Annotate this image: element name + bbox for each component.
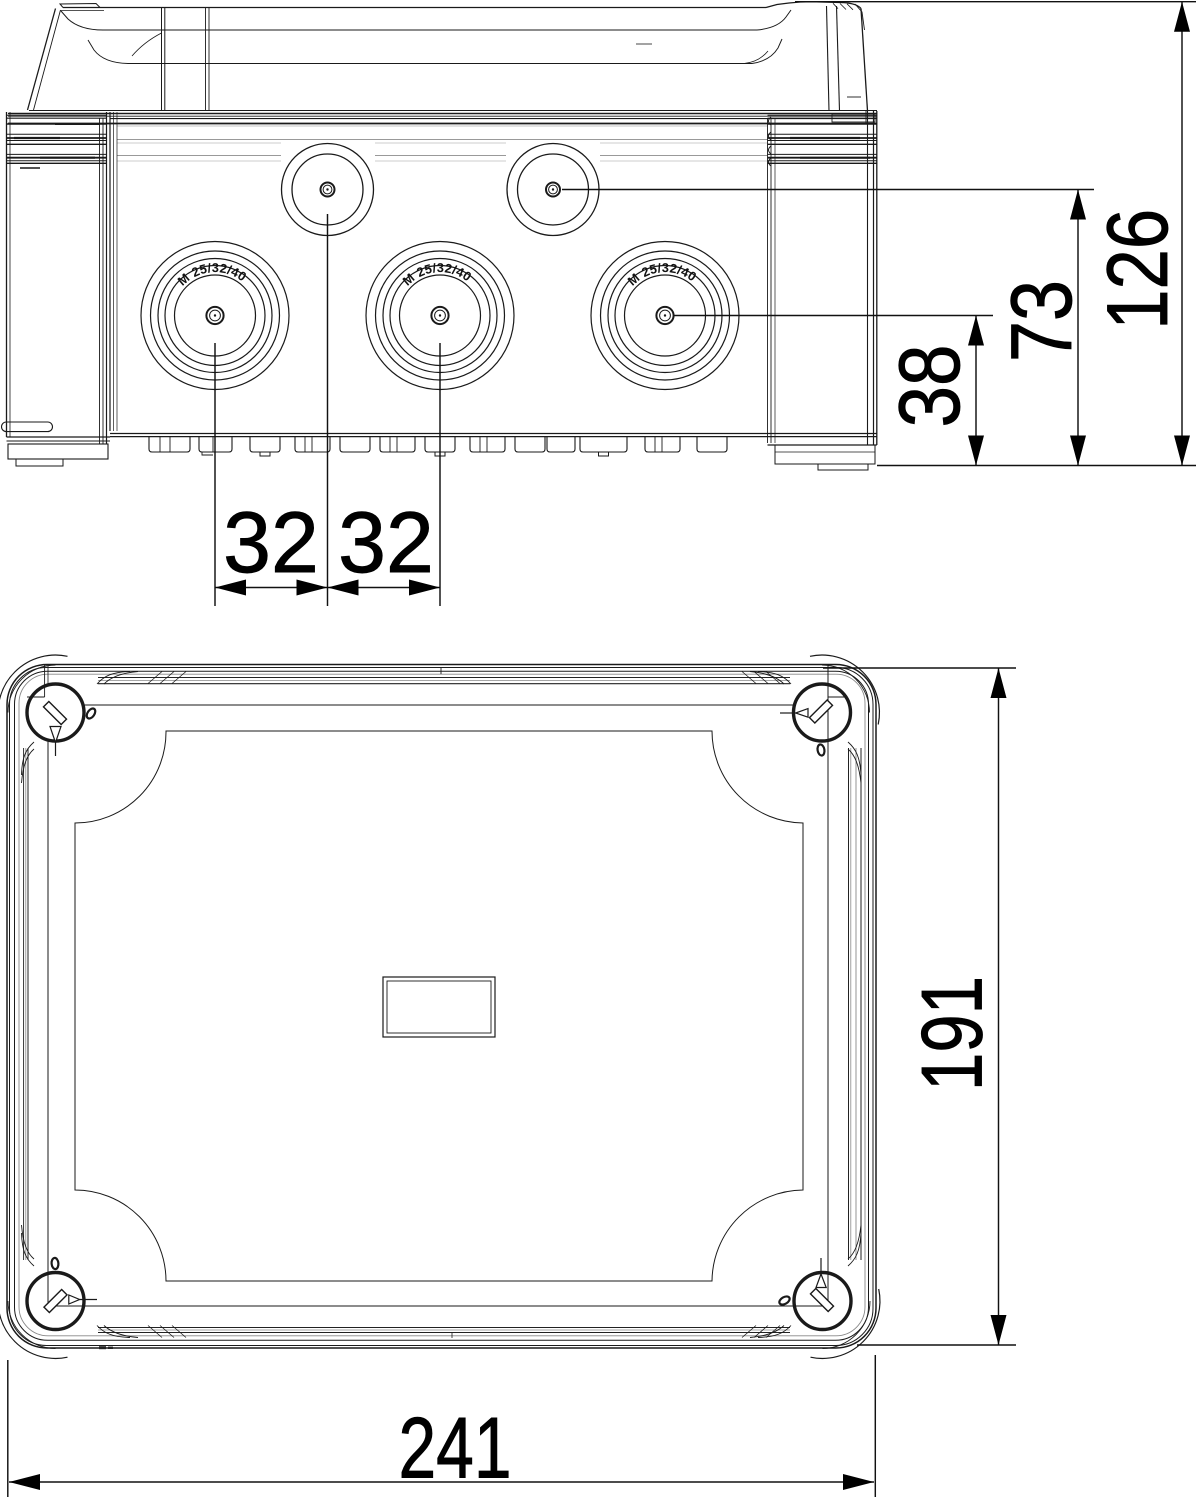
svg-text:126: 126 — [1090, 209, 1186, 330]
svg-text:241: 241 — [399, 1401, 512, 1497]
svg-text:191: 191 — [905, 976, 1001, 1091]
svg-text:38: 38 — [882, 345, 978, 428]
svg-text:32: 32 — [338, 495, 434, 591]
svg-text:73: 73 — [994, 280, 1090, 362]
svg-text:32: 32 — [223, 495, 319, 591]
